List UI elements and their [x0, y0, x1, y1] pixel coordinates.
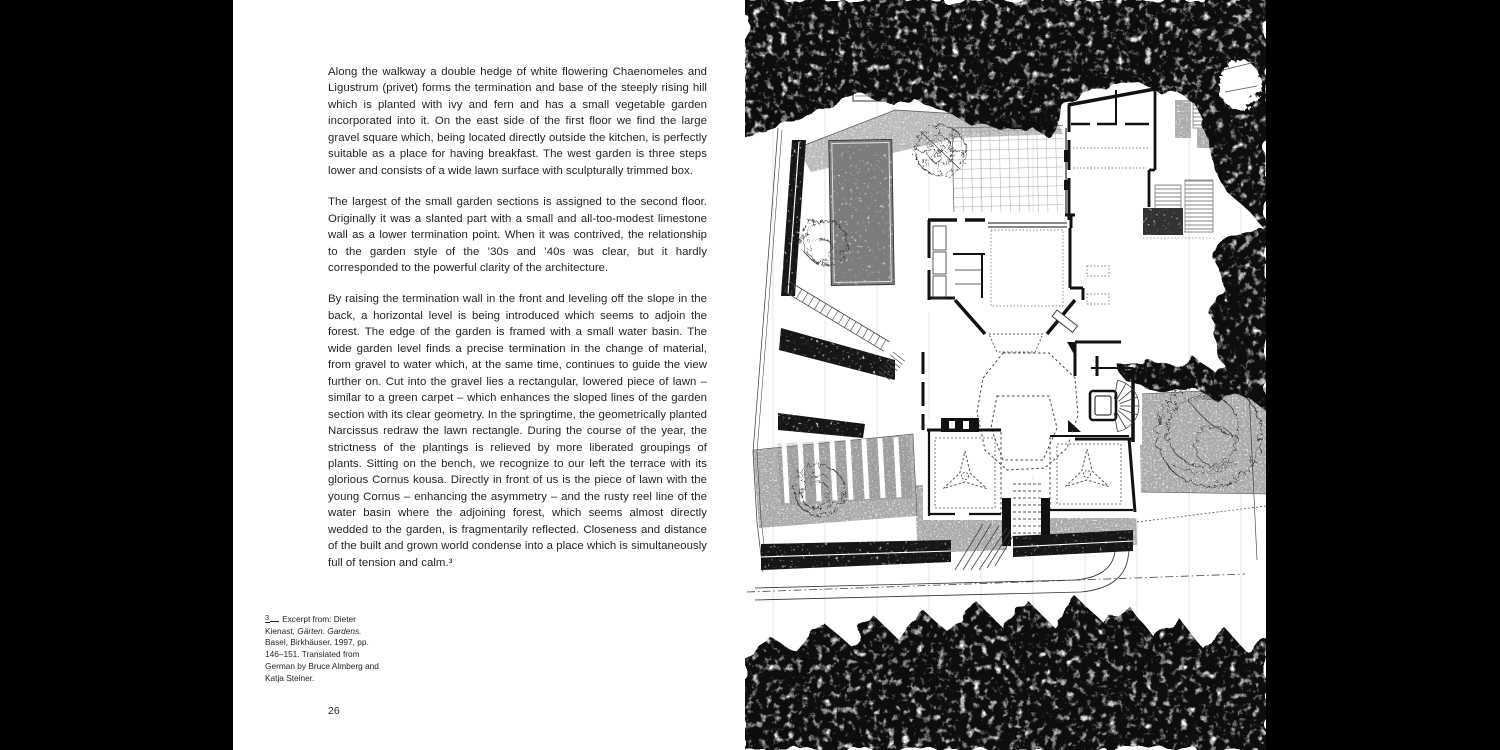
paragraph-2: The largest of the small garden sections… [328, 194, 707, 276]
footnote-tail: Basel, Birkhäuser, 1997, pp. 146–151. Tr… [265, 637, 379, 682]
page-number: 26 [328, 705, 340, 717]
canopy-blob [1034, 113, 1056, 135]
paragraph-1: Along the walkway a double hedge of whit… [328, 64, 707, 179]
book-spread: Along the walkway a double hedge of whit… [233, 0, 1266, 750]
lawn-strips [778, 437, 913, 506]
footnote-rule [270, 613, 279, 622]
vegetable-garden [829, 139, 895, 285]
garden-site-plan [745, 0, 1266, 750]
gravel-square-grid [952, 125, 1067, 223]
body-text: Along the walkway a double hedge of whit… [328, 64, 707, 586]
left-page: Along the walkway a double hedge of whit… [233, 0, 745, 750]
footnote-work-title: Gärten. Gardens. [297, 626, 361, 636]
footnote: 3Excerpt from: Dieter Kienast, Gärten. G… [265, 612, 385, 684]
forest-clearing [1216, 57, 1258, 107]
tree-trunk-mass [1215, 279, 1247, 371]
right-page [745, 0, 1266, 750]
paragraph-3: By raising the termination wall in the f… [328, 291, 707, 571]
